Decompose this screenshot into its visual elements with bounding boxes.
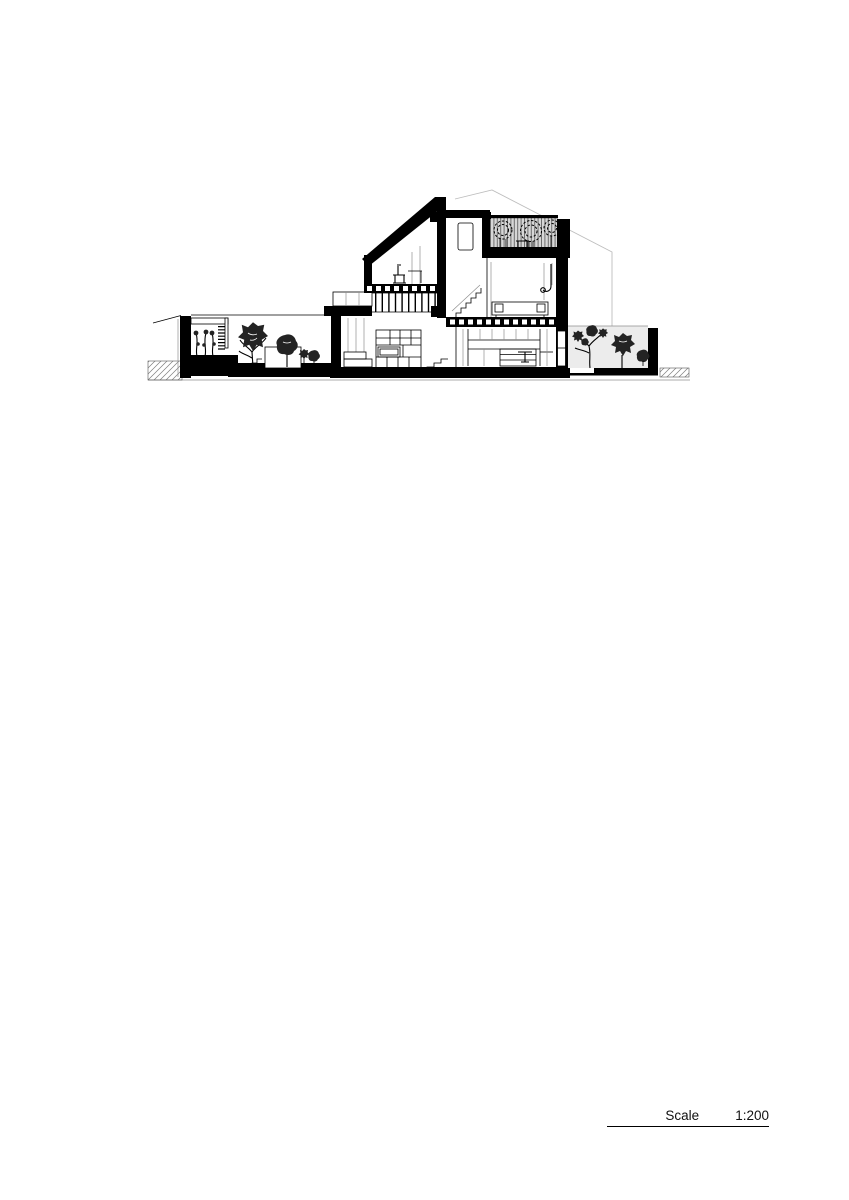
tv-screen	[378, 347, 400, 357]
scale-label: Scale	[665, 1109, 699, 1123]
terrace-slab	[482, 247, 570, 258]
stair-window	[458, 223, 473, 250]
attic-left-wall	[364, 255, 372, 285]
desk-chair	[393, 265, 422, 283]
scale-value: 1:200	[735, 1109, 769, 1123]
terrace-parapet	[557, 219, 570, 249]
house-ground-slab	[330, 367, 570, 378]
bedroom	[487, 258, 552, 318]
hall-desk	[344, 352, 366, 359]
bed	[492, 302, 548, 318]
staircase	[450, 288, 481, 318]
kitchen	[456, 327, 553, 367]
sloped-roof	[362, 197, 444, 266]
rear-boundary-wall	[648, 328, 658, 375]
ground-hatch-right	[660, 368, 689, 377]
mezzanine	[364, 284, 446, 317]
tree	[238, 322, 268, 367]
shower-fixture	[541, 264, 551, 292]
first-floor-slab	[446, 317, 568, 327]
roof-purlin	[430, 212, 438, 222]
rear-wall	[556, 258, 568, 375]
garden-door	[558, 331, 566, 366]
mezzanine-glazing	[333, 292, 372, 306]
living-room	[344, 318, 448, 371]
sink	[518, 352, 532, 362]
ground-hatch-left	[148, 361, 182, 380]
section-drawing	[0, 0, 849, 1200]
shelving-unit	[376, 330, 421, 368]
scale-bar: Scale 1:200	[607, 1109, 769, 1127]
central-wall	[437, 197, 446, 318]
rear-garden	[568, 325, 649, 368]
front-wall	[331, 316, 341, 368]
roof-terrace	[482, 212, 570, 258]
attic-room	[362, 197, 444, 285]
entrance-gate	[191, 318, 228, 356]
gate-plants	[194, 330, 216, 356]
drawing-sheet: Scale 1:200	[0, 0, 849, 1200]
